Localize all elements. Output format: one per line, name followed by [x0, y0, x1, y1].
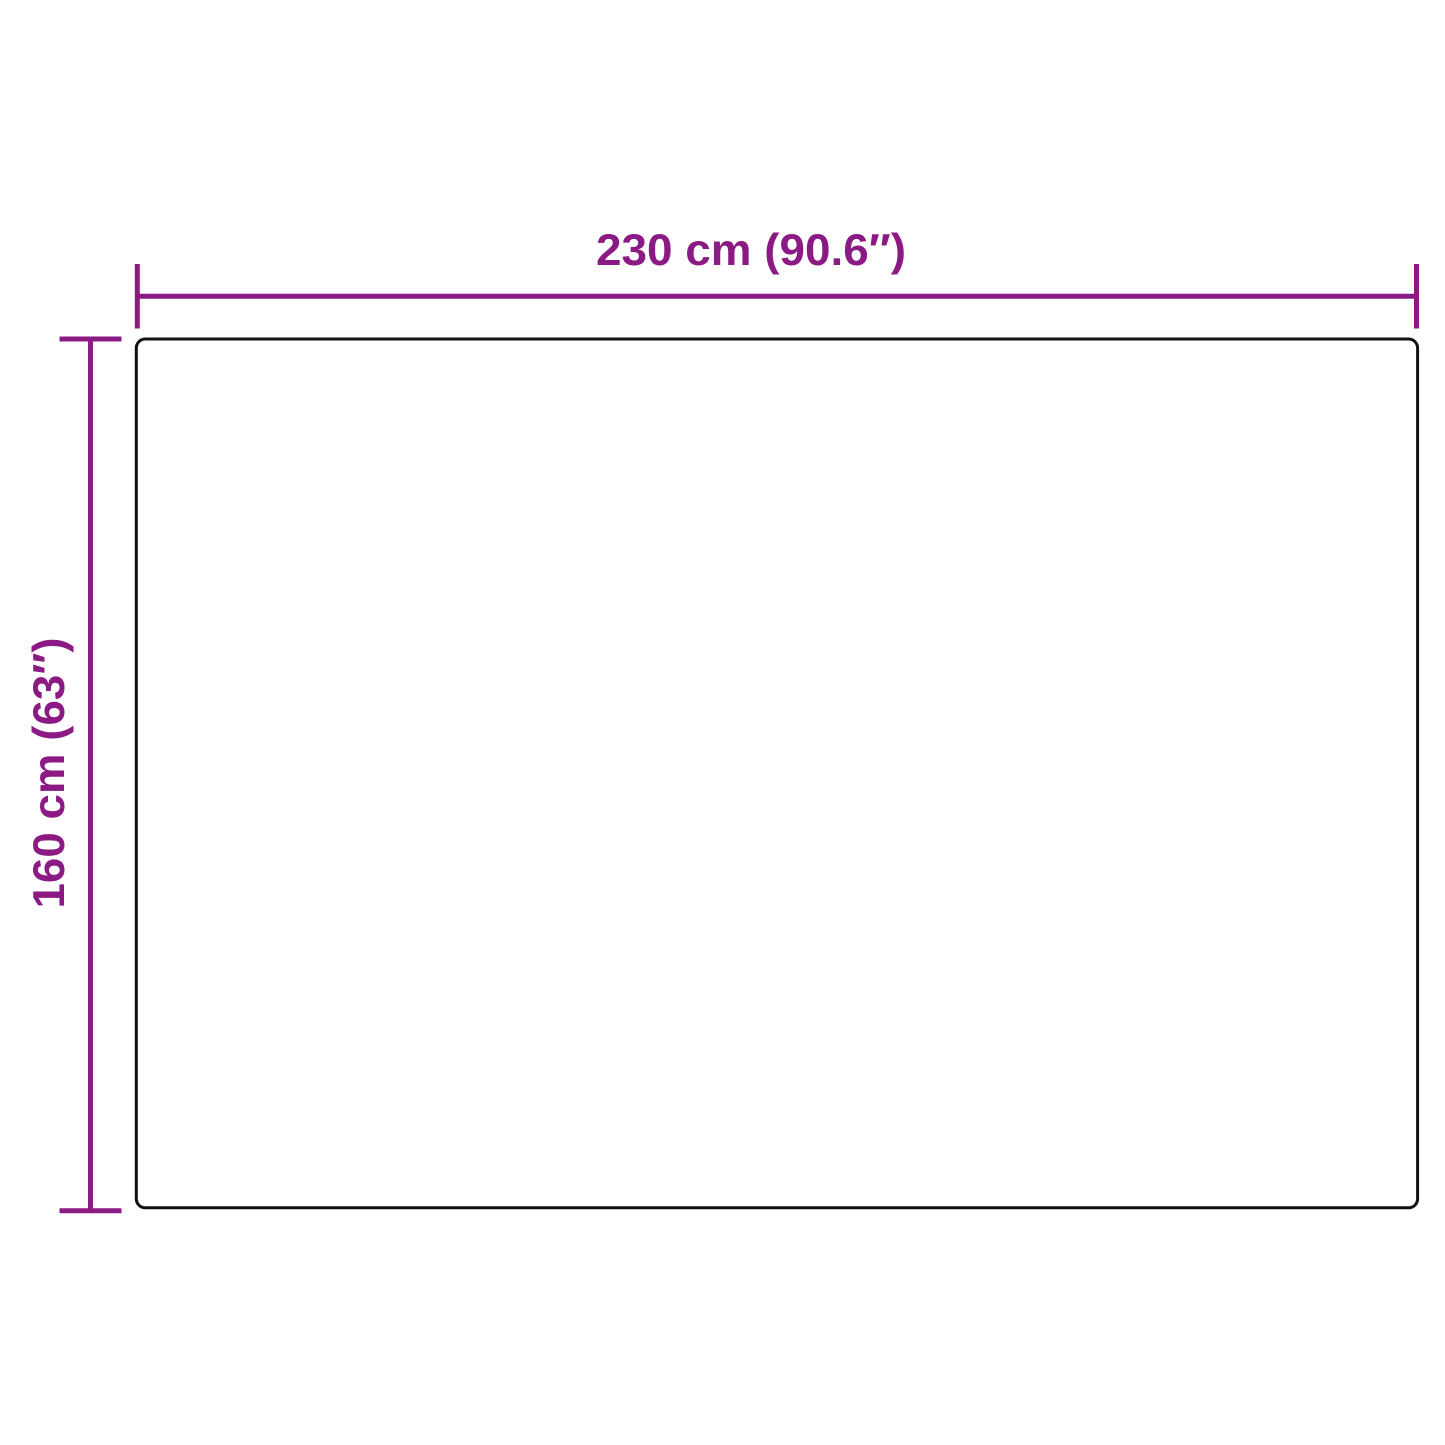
svg-text:230 cm (90.6″): 230 cm (90.6″): [596, 226, 906, 275]
svg-text:160 cm (63″): 160 cm (63″): [25, 638, 74, 909]
